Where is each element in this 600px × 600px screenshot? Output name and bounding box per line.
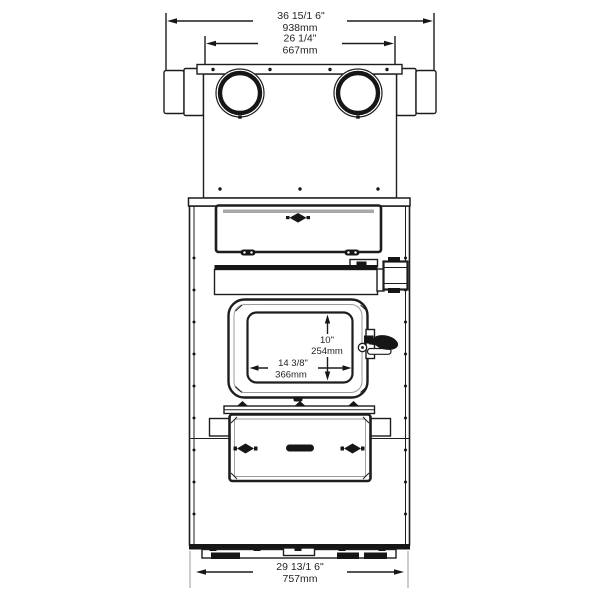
left-duct-inner [184,69,204,116]
handle-pivot-pin [361,346,364,349]
arrowhead-left-icon [206,41,216,47]
collar-outer-ring [216,69,264,117]
screw-dot [385,68,388,71]
handle-slot [286,445,314,452]
knob-horn [307,216,311,219]
screw-dot [328,68,331,71]
shelf-body [215,270,378,295]
control-box-tab-bottom [388,288,400,293]
shelf-top-edge [215,265,378,270]
panel-top-shading [223,210,374,214]
right-duct-outer [416,71,436,114]
base-tab [254,547,261,552]
arrowhead-left-icon [167,18,177,24]
screw-dot [376,187,379,190]
arrowhead-right-icon [394,569,404,575]
collar-outer-ring [334,69,382,117]
knob-horn [286,216,290,219]
screw-dot [218,187,221,190]
dim-plenum-width: 26 1/4" 667mm [205,33,395,67]
door-width-inches: 14 3/8" [278,358,308,369]
control-box-tab-top [388,257,400,262]
collar-tab [356,116,360,119]
base-assembly [189,544,410,559]
plenum-width-inches: 26 1/4" [284,33,317,45]
louver-access-panel [216,206,381,256]
base-width-inches: 29 13/1 6" [276,561,324,573]
right-duct-inner [397,69,417,116]
screw-dot [268,68,271,71]
base-width-mm: 757mm [282,573,317,585]
base-tab [295,547,302,552]
arrowhead-right-icon [384,41,394,47]
base-tab [379,547,386,552]
plenum-width-mm: 667mm [282,45,317,57]
base-tab [210,547,217,552]
base-pad [211,553,240,560]
technical-drawing-canvas: 36 15/1 6" 938mm 26 1/4" 667mm [0,0,600,600]
panel-clip-left [241,250,256,256]
arrowhead-left-icon [196,569,206,575]
screw-dot [298,187,301,190]
collar-tab [238,116,242,119]
screw-dot [211,68,214,71]
damper-control-box [384,257,408,293]
base-tab [339,547,346,552]
door-width-mm: 366mm [275,370,307,381]
plenum-assembly [164,65,436,199]
furnace-dimension-diagram: 36 15/1 6" 938mm 26 1/4" 667mm [0,0,600,600]
base-pad [337,553,359,560]
arrowhead-right-icon [423,18,433,24]
door-height-inches: 10" [320,335,334,346]
panel-clip-right [345,250,360,256]
control-box [384,262,408,290]
shelf-step-tab [357,262,367,266]
overall-width-inches: 36 15/1 6" [277,10,325,22]
door-bottom-tab [294,397,303,402]
door-height-mm: 254mm [311,346,343,357]
left-duct-outer [164,71,184,114]
base-pad [364,553,387,560]
